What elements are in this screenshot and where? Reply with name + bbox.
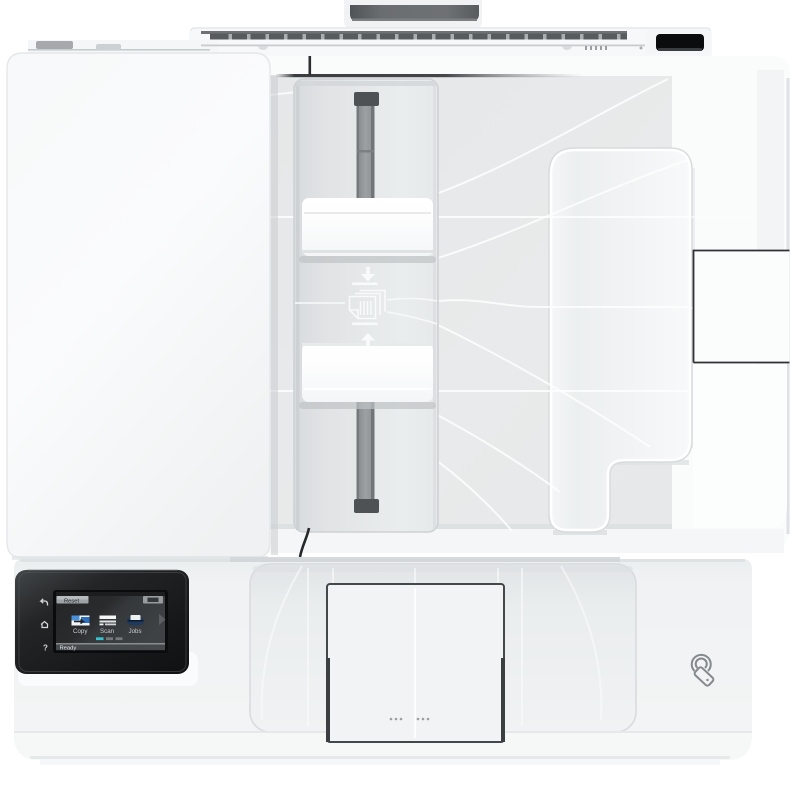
svg-text:?: ? [43,644,48,653]
svg-text:Copy: Copy [73,628,88,635]
svg-text:Ready: Ready [60,645,77,651]
svg-text:Jobs: Jobs [129,628,142,635]
svg-text:Reset: Reset [64,599,80,605]
svg-text:Scan: Scan [100,628,115,635]
